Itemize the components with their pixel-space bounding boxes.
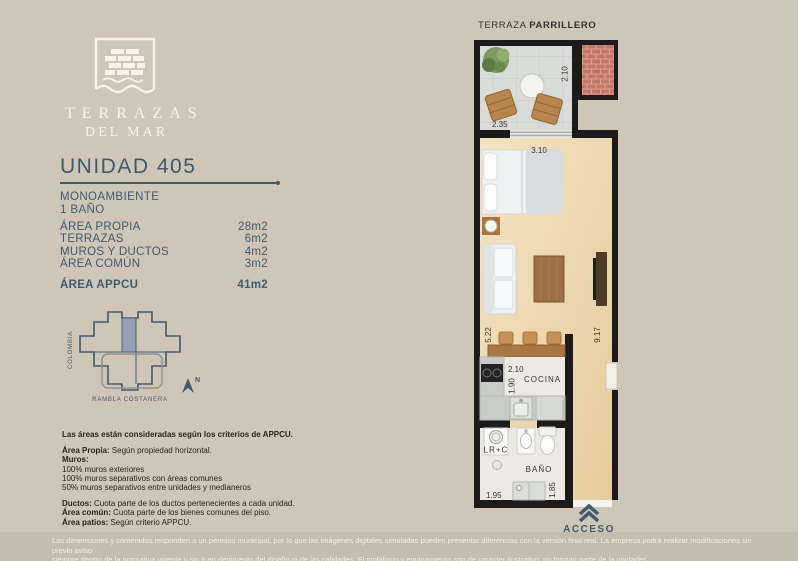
- stool: [499, 332, 513, 344]
- plan-title-terraza: TERRAZA: [478, 20, 526, 31]
- location-map: COLOMBIA RAMBLA COSTANERA N: [62, 296, 204, 418]
- shower: [513, 482, 545, 500]
- area-total-label: ÁREA APPCU: [60, 279, 138, 292]
- street-label-rambla: RAMBLA COSTANERA: [92, 397, 168, 403]
- area-total-value: 41m2: [237, 279, 268, 292]
- room-label-bano: BAÑO: [526, 465, 553, 474]
- acceso-arrow-icon: [580, 506, 598, 521]
- vanity-sink: [517, 428, 535, 454]
- kitchen-appliance: [536, 396, 563, 420]
- room-label-cocina: COCINA: [524, 375, 561, 384]
- street-label-colombia: COLOMBIA: [68, 331, 74, 369]
- plan-title-parrillero: PARRILLERO: [529, 20, 596, 31]
- cooktop: [481, 364, 503, 382]
- area-row: ÁREA PROPIA 28m2: [60, 221, 268, 233]
- plan-title: TERRAZA PARRILLERO: [478, 20, 596, 31]
- logo-emblem-icon: [93, 36, 157, 94]
- unit-type-line1: MONOAMBIENTE: [60, 191, 159, 204]
- unit-type: MONOAMBIENTE 1 BAÑO: [60, 191, 159, 217]
- footer-line2: siempre dentro de la normativa vigente y…: [52, 555, 760, 561]
- dim-bed-width: 3.10: [531, 146, 547, 155]
- criteria-line: Área Propia: Según propiedad horizontal.: [62, 446, 332, 455]
- footer-line1: Las dimensiones y contenidos responden a…: [52, 536, 760, 555]
- parrillero-brick: [582, 45, 614, 95]
- coffee-table: [534, 256, 564, 302]
- stool: [547, 332, 561, 344]
- label-lrc: LR+C: [484, 446, 509, 455]
- title-rule: [60, 182, 276, 184]
- dim-bath-depth: 1.85: [548, 482, 557, 498]
- criteria-title: Las áreas están consideradas según los c…: [62, 430, 332, 439]
- criteria-line: Muros:: [62, 455, 332, 464]
- area-label: MUROS Y DUCTOS: [60, 246, 169, 258]
- criteria-line: Ductos: Cuota parte de los ductos perten…: [62, 499, 332, 508]
- area-row: MUROS Y DUCTOS 4m2: [60, 246, 268, 258]
- terrace-notch: [578, 100, 618, 130]
- entry-threshold: [573, 500, 612, 507]
- area-value: 28m2: [238, 221, 268, 233]
- criteria-line: 100% muros separativos con áreas comunes: [62, 474, 332, 483]
- criteria-block2: Ductos: Cuota parte de los ductos perten…: [62, 499, 332, 527]
- dim-kitchen-depth: 1.90: [508, 378, 517, 394]
- area-row: ÁREA COMÚN 3m2: [60, 258, 268, 270]
- bed: [482, 150, 562, 214]
- area-value: 4m2: [245, 246, 268, 258]
- nightstand: [482, 217, 500, 235]
- criteria-line: 100% muros exteriores: [62, 465, 332, 474]
- kitchen-sink: [510, 397, 532, 419]
- dim-terrace-width: 2.35: [492, 120, 508, 129]
- sofa: [484, 244, 516, 314]
- area-label: TERRAZAS: [60, 233, 124, 245]
- brand-logo: TERRAZAS DEL MAR: [58, 36, 192, 141]
- logo-bricks: [105, 49, 145, 75]
- area-label: ÁREA COMÚN: [60, 258, 140, 270]
- footer-disclaimer: Las dimensiones y contenidos responden a…: [0, 532, 798, 561]
- map-lower-body: [102, 354, 162, 388]
- criteria-block1: Área Propia: Según propiedad horizontal.…: [62, 446, 332, 492]
- unit-type-line2: 1 BAÑO: [60, 204, 159, 217]
- floorplan: 2.10 2.35 3.10 5.22 9.17 2.10 1.90 COCIN…: [470, 34, 622, 534]
- area-value: 6m2: [245, 233, 268, 245]
- area-total-row: ÁREA APPCU 41m2: [60, 279, 268, 292]
- brochure-page: TERRAZAS DEL MAR UNIDAD 405 MONOAMBIENTE…: [0, 0, 798, 561]
- tv-unit: [593, 252, 607, 306]
- area-list: ÁREA PROPIA 28m2 TERRAZAS 6m2 MUROS Y DU…: [60, 221, 268, 292]
- map-unit-highlight: [122, 318, 136, 352]
- sliding-door: [510, 130, 572, 138]
- bath-fixture: [493, 461, 502, 470]
- bar-counter: [488, 332, 565, 357]
- area-label: ÁREA PROPIA: [60, 221, 141, 233]
- criteria-line: Área patios: Según criterio APPCU.: [62, 518, 332, 527]
- entry-door: [606, 363, 617, 389]
- stool: [523, 332, 537, 344]
- brand-name-line1: TERRAZAS: [58, 105, 192, 123]
- dim-bath-width: 1.95: [486, 491, 502, 500]
- north-arrow-icon: [182, 378, 194, 393]
- criteria-line: 50% muros separativos entre unidades y m…: [62, 483, 332, 492]
- brand-name-line2: DEL MAR: [58, 125, 192, 141]
- dim-terrace-depth: 2.10: [561, 66, 570, 82]
- dim-living-left: 5.22: [484, 327, 493, 343]
- criteria-line: Área común: Cuota parte de los bienes co…: [62, 508, 332, 517]
- toilet: [539, 427, 556, 455]
- area-row: TERRAZAS 6m2: [60, 233, 268, 245]
- north-label: N: [195, 377, 200, 384]
- criteria-notes: Las áreas están consideradas según los c…: [62, 430, 332, 534]
- area-value: 3m2: [245, 258, 268, 270]
- dim-living-right: 9.17: [593, 327, 602, 343]
- unit-title: UNIDAD 405: [60, 155, 196, 179]
- dim-kitchen-width: 2.10: [508, 365, 524, 374]
